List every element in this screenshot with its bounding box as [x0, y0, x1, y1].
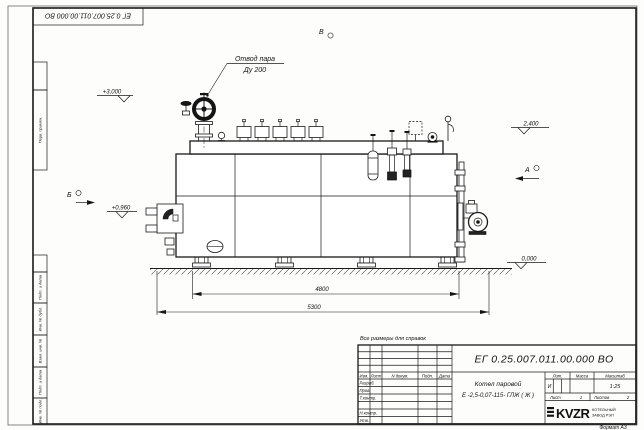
sheets-label: Листов — [593, 395, 610, 400]
view-v-letter: В — [319, 29, 324, 36]
elevation-top-value: +3,000 — [103, 90, 122, 96]
col-list: Лист — [370, 374, 382, 379]
drum-fittings — [409, 116, 453, 142]
steam-outlet-label-line2: Ду 200 — [243, 67, 266, 74]
logo-text: KVZR — [556, 406, 591, 421]
title-block: Изм. Лист N докум. Подп. Дата Разраб. Пр… — [358, 345, 636, 424]
row-tcontrol: Т.контр. — [360, 396, 377, 401]
row-ncontrol: Н.контр. — [360, 411, 378, 416]
lit-value: И — [548, 384, 552, 390]
scale-header: Масштаб — [605, 374, 625, 379]
elevation-top: +3,000 — [97, 90, 133, 103]
sheet-value: 1 — [580, 395, 582, 400]
steam-outlet-valve — [181, 92, 215, 148]
dimension-4800: 4800 — [193, 287, 460, 296]
row-approved: Утв. — [360, 418, 370, 423]
product-name-line1: Котел паровой — [475, 380, 522, 388]
boiler-drawing: Отвод пара Ду 200 — [146, 55, 488, 267]
margin-stamp-inv-dubl: Инв. № дубл. — [38, 307, 43, 332]
water-level-gauges — [368, 130, 411, 180]
elevation-ground: 0,000 — [507, 257, 546, 269]
doc-number: ЕГ 0.25.007.011.00.000 ВО — [474, 354, 613, 366]
sheet-label: Лист — [549, 395, 561, 400]
margin-stamp-vzam-inv: Взам. инв. № — [38, 338, 43, 363]
drawing-sheet: Перв. примен. Подп. и дата Инв. № дубл. … — [0, 0, 644, 430]
elevation-burner-value: +0,960 — [112, 206, 131, 212]
view-marker-a: А — [515, 165, 539, 181]
lit-header: Лит. — [552, 374, 563, 379]
margin-stamp-perv-primen: Перв. примен. — [38, 117, 43, 144]
row-developed: Разраб. — [360, 381, 375, 386]
scale-value: 1:25 — [610, 384, 622, 390]
company-logo: KVZR КОТЕЛЬНЫЙ ЗАВОД РЭП — [547, 406, 616, 421]
sheets-value: 2 — [626, 395, 630, 400]
corner-stamp: ЕГ 0.25.007.011.00.000 ВО — [33, 8, 143, 25]
view-marker-v: В — [319, 29, 333, 38]
mass-header: Масса — [576, 374, 589, 379]
boiler-body — [165, 141, 457, 257]
view-marker-b: Б — [67, 190, 95, 205]
elevation-ground-value: 0,000 — [521, 257, 537, 263]
dimension-4800-value: 4800 — [315, 287, 329, 293]
elevation-right-value: 2,400 — [522, 122, 539, 128]
col-sign: Подп. — [422, 374, 433, 379]
view-b-letter: Б — [67, 192, 72, 199]
ground-line — [150, 269, 512, 275]
row-checked: Пров. — [360, 388, 371, 393]
dimension-5300: 5300 — [157, 305, 489, 314]
view-a-letter: А — [524, 167, 530, 174]
margin-stamp-podp-data-2: Подп. и дата — [38, 369, 43, 395]
elevation-right: 2,400 — [511, 122, 549, 135]
format-label: Формат А3 — [599, 425, 627, 430]
dimensions: 4800 5300 — [157, 271, 489, 315]
burner — [146, 204, 183, 233]
feed-pump-unit — [458, 201, 488, 235]
steam-outlet-label: Отвод пара Ду 200 — [206, 55, 284, 97]
elevation-burner: +0,960 — [107, 206, 137, 219]
dimension-5300-value: 5300 — [307, 305, 321, 311]
col-date: Дата — [438, 374, 451, 379]
steam-outlet-label-line1: Отвод пара — [235, 55, 275, 63]
reference-note: Все размеры для справок — [360, 336, 426, 342]
col-izm: Изм. — [360, 374, 369, 379]
margin-stamp-podp-data-1: Подп. и дата — [38, 274, 43, 300]
margin-stamp-inv-podl: Инв. № подл. — [38, 399, 43, 424]
safety-valves — [218, 120, 323, 142]
corner-stamp-number: ЕГ 0.25.007.011.00.000 ВО — [44, 12, 131, 19]
logo-sub-line1: КОТЕЛЬНЫЙ — [592, 408, 616, 412]
logo-sub-line2: ЗАВОД РЭП — [592, 414, 614, 418]
col-doc: N докум. — [392, 374, 409, 379]
margin-stamps: Перв. примен. Подп. и дата Инв. № дубл. … — [33, 62, 47, 424]
product-name-line2: Е -2,5-0,07-115- ГЛЖ ( Ж ) — [462, 393, 534, 399]
